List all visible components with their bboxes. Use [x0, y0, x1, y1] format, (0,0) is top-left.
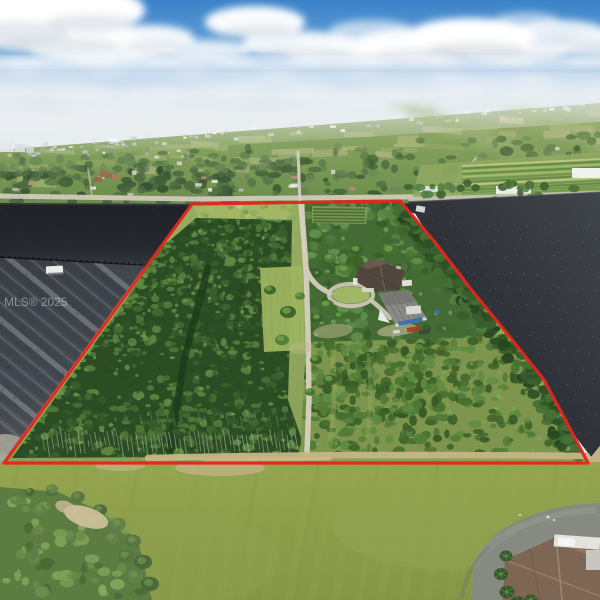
- svg-text:MLS® 2025: MLS® 2025: [4, 295, 68, 309]
